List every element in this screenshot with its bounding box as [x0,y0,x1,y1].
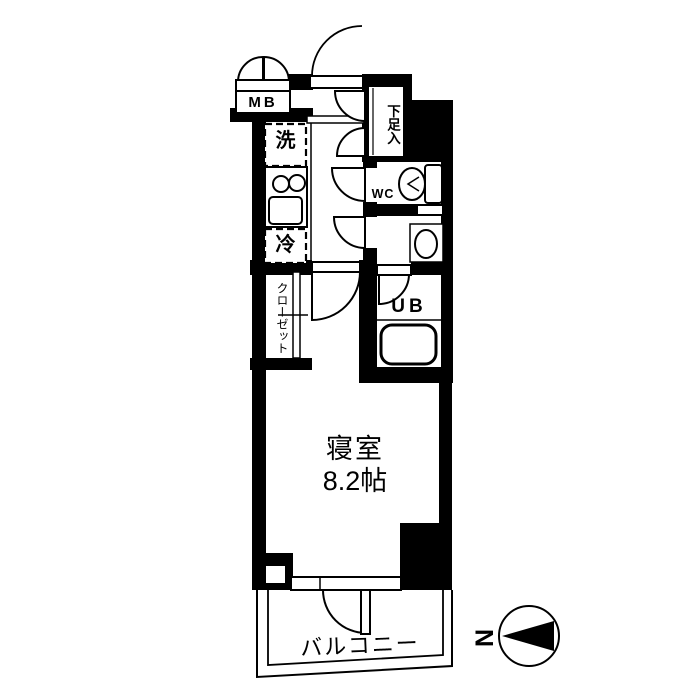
compass-north-label: N [473,623,503,653]
unit-bath-label: UB [383,297,435,316]
bedroom-label: 寝室 [295,436,415,463]
balcony-label: バルコニー [290,632,431,660]
closet-label: クローゼット [271,277,288,359]
bathtub-icon [381,325,436,364]
meter-box-label: MB [238,95,288,110]
entrance-door [310,26,363,88]
stove-burner-right [289,175,305,191]
toilet-tank [425,165,442,203]
entrance-door-arc [312,26,362,76]
washing-machine-label: 洗 [265,131,306,151]
bedroom-door-leaf [312,262,360,272]
balcony-door-swing [323,590,366,633]
window [291,577,401,590]
washroom-door [334,217,365,248]
wall-left [252,120,266,555]
wall-bedroom-ub [359,260,377,383]
floorplan-drawing [0,0,700,700]
bedroom-size-label: 8.2帖 [295,468,415,495]
wall-right-bedroom [439,383,452,523]
balcony-door-leaf [361,590,370,634]
mb-door-right [264,57,289,82]
washroom-shelf-slot [418,206,442,214]
shoe-storage-door-lower [337,128,365,156]
wc-label: WC [366,188,400,201]
shoe-storage-label: 下足入 [379,93,399,155]
wall-stub-wc-top [363,157,377,168]
ub-door-leaf [377,265,411,275]
toilet-bowl [399,168,425,200]
stove-burner-left [273,176,289,192]
wc-door [332,168,365,201]
refrigerator-label: 冷 [265,235,306,255]
washbasin-bowl [415,230,437,258]
compass [499,606,559,666]
washbasin-icon [410,224,443,262]
mb-door-left [238,57,263,82]
entrance-door-leaf [310,76,363,88]
window-frame [291,577,401,590]
wall-ub-bottom [359,367,453,383]
floorplan-canvas: MB 洗 冷 下足入 WC UB クローゼット 寝室 8.2帖 バルコニー N [0,0,700,700]
wall-stub-washroom [363,248,377,262]
wall-closet-bottom [250,358,312,370]
kitchen-sink [269,197,302,224]
pillar-southeast [400,523,452,590]
pillar-hole [266,566,285,583]
unit-bath [377,320,441,364]
bedroom-door-swing [312,272,360,320]
mb-front-bar [236,80,290,91]
toilet-icon [399,165,442,203]
